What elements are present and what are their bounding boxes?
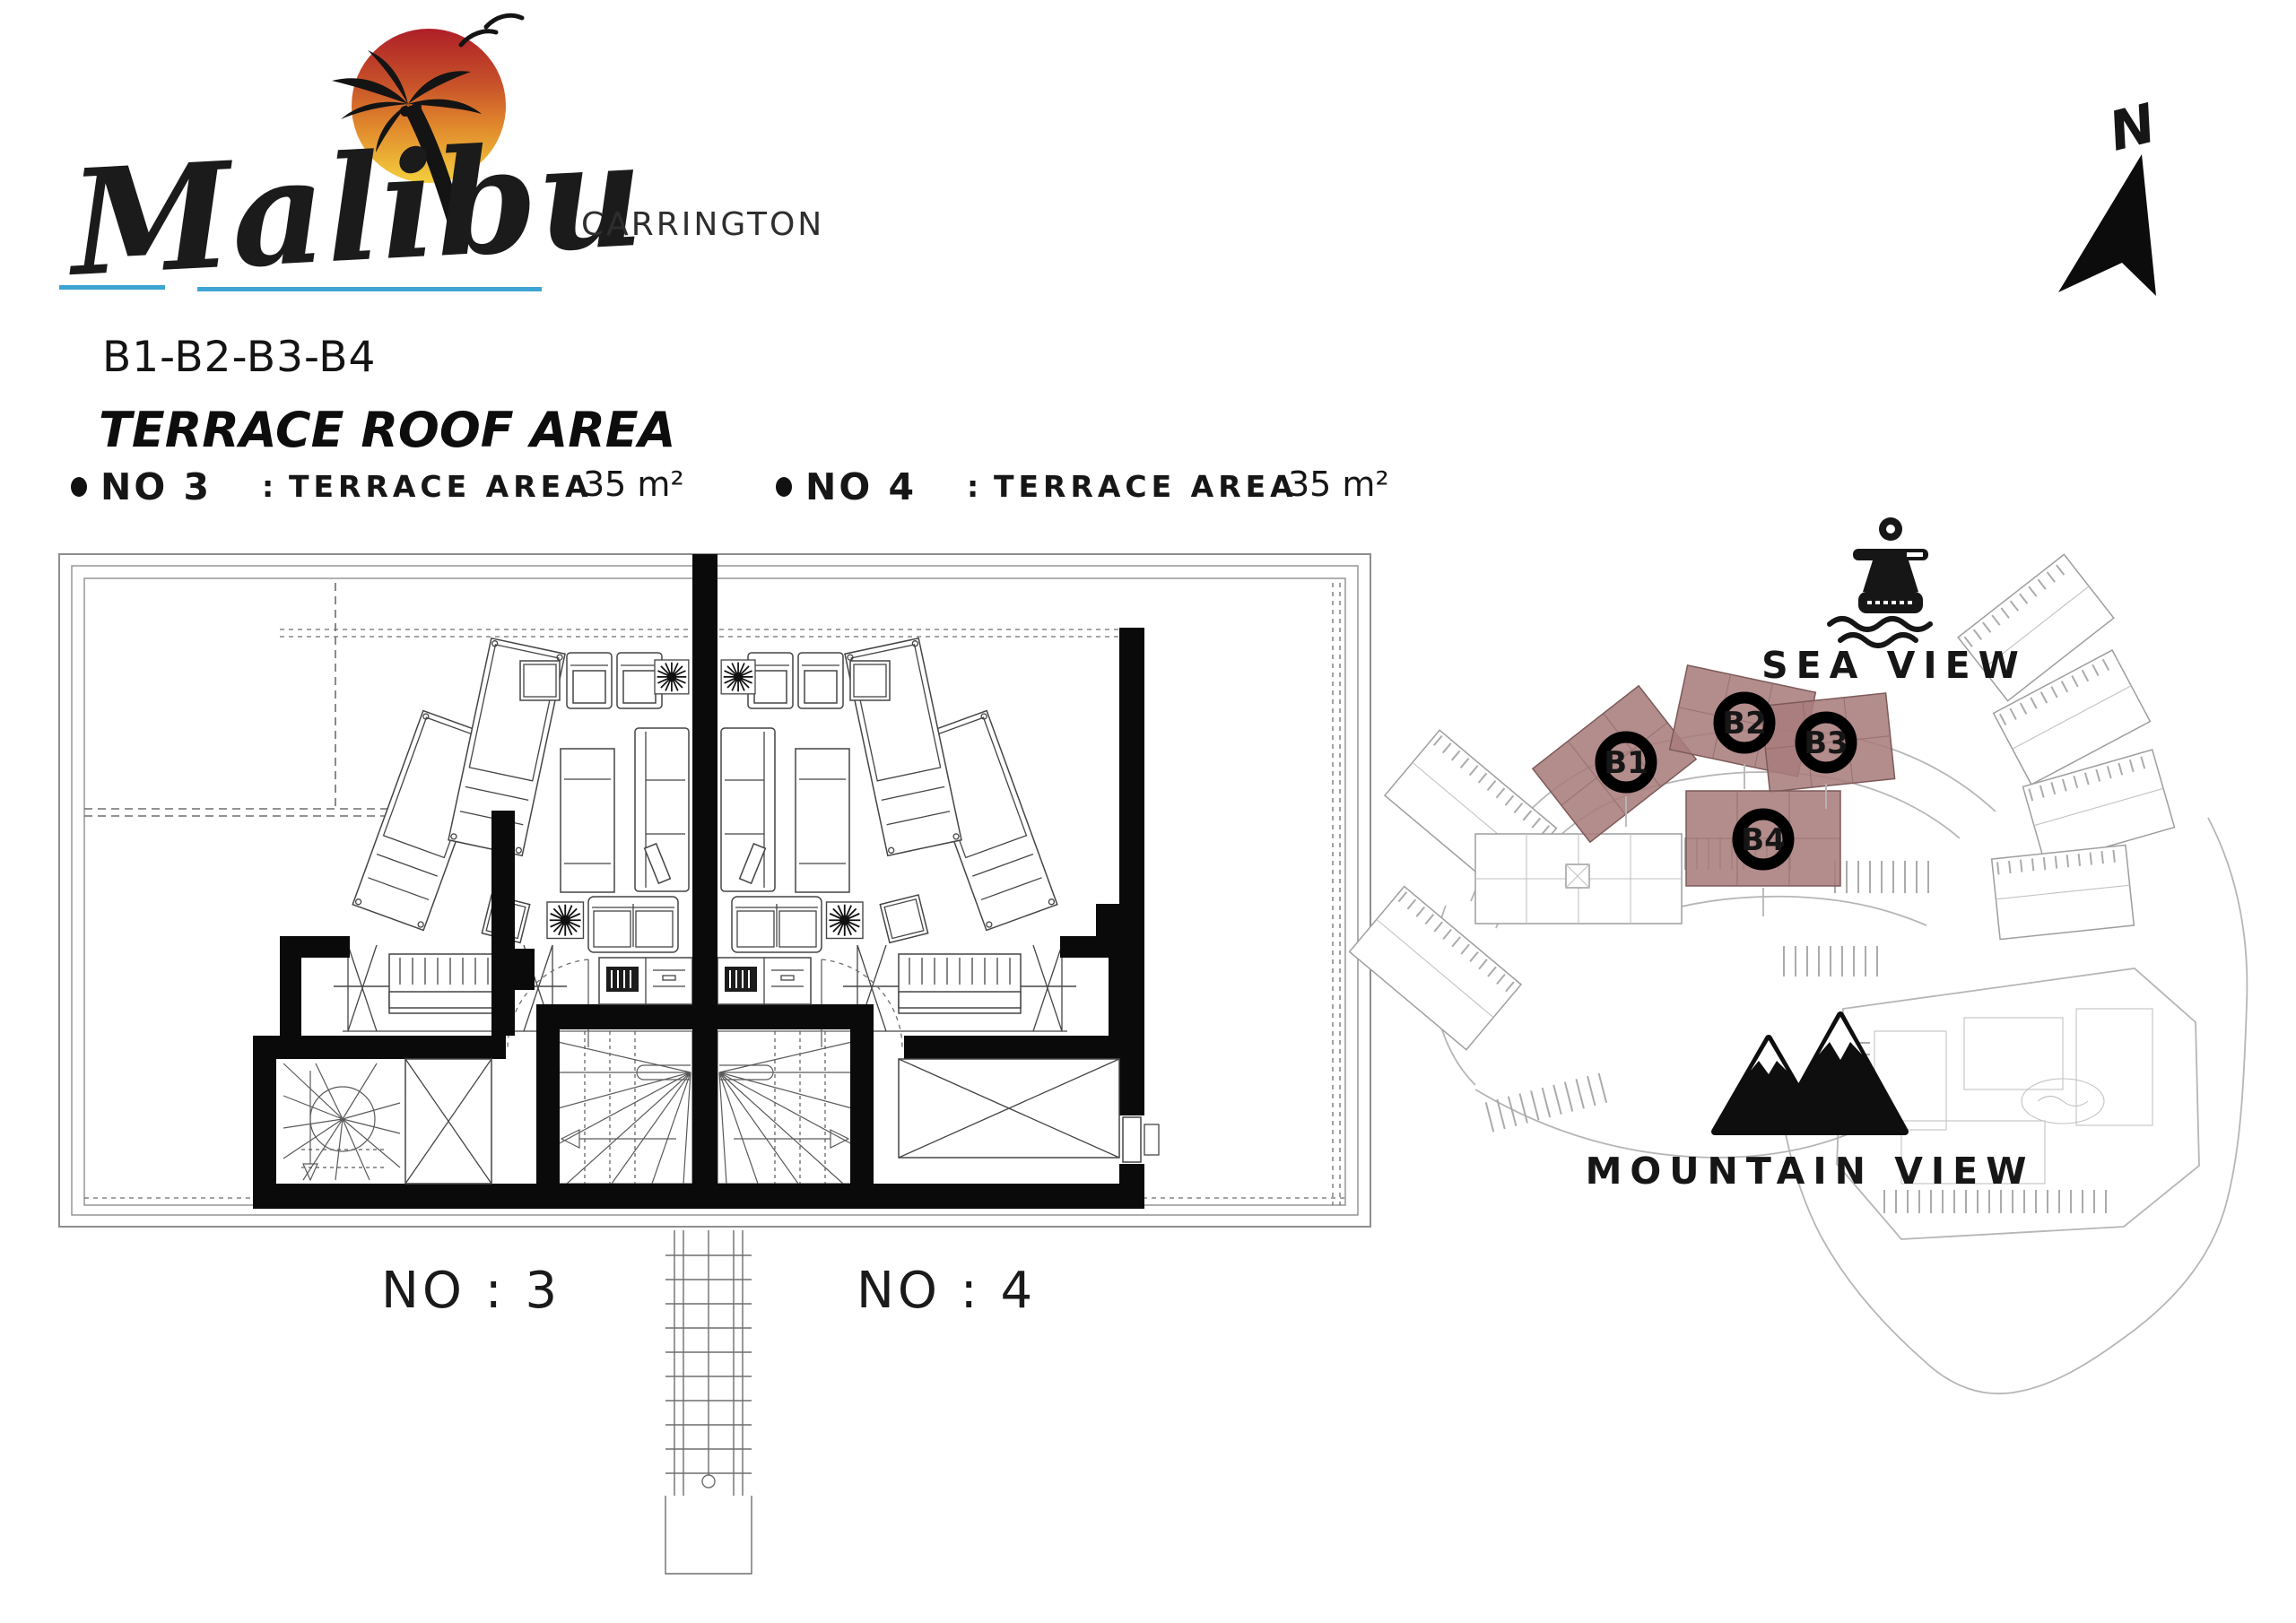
bullet-icon [71,477,87,497]
spec-colon: : [262,469,278,504]
window [1123,1117,1141,1162]
birds-icon [461,15,522,45]
shaft-no4 [899,1059,1119,1158]
north-label: N [2103,92,2162,164]
walkway-stair [665,1230,752,1574]
marker-label-b2: B2 [1722,706,1767,742]
spec-value: 35 m² [1288,464,1389,504]
north-arrow: N [2058,92,2162,296]
spec-colon: : [967,469,983,504]
unit-range-heading: B1-B2-B3-B4 [102,333,376,382]
unit-label-no3: NO : 3 [381,1262,561,1320]
logo-underline-right [197,287,542,291]
north-arrow-icon [2058,154,2156,296]
spec-no: NO 3 [100,465,212,508]
spec-no: NO 4 [805,465,917,508]
spec-row-no3: NO 3 : TERRACE AREA 35 m² [71,464,684,508]
logo-underline-left [59,285,165,290]
sheet-title: TERRACE ROOF AREA [99,402,675,458]
bullet-icon [776,477,792,497]
spec-label: TERRACE AREA [994,469,1298,504]
winder-stair [283,1063,400,1180]
spec-label: TERRACE AREA [289,469,593,504]
unit-label-no4: NO : 4 [857,1262,1036,1320]
shaft-no3 [405,1059,491,1184]
brand-subtitle: CARRINGTON [581,206,824,243]
sea-view-icon [1830,517,1930,646]
floor-plan: NO : 3 NO : 4 [59,554,1370,1574]
site-map: B1 B2 B3 B4 SEA VIEW MOUNTAIN V [1350,517,2248,1393]
spec-row-no4: NO 4 : TERRACE AREA 35 m² [776,464,1389,508]
marker-label-b1: B1 [1604,745,1648,781]
mountain-view-icon [1715,1015,1905,1132]
sheet-header: B1-B2-B3-B4 TERRACE ROOF AREA NO 3 : TER… [71,333,1389,508]
marker-label-b3: B3 [1804,725,1848,761]
mountain-view-label: MOUNTAIN VIEW [1586,1150,2035,1193]
marker-label-b4: B4 [1741,822,1786,858]
brand-name: Malibu [62,109,647,309]
party-wall [692,554,717,1209]
spec-value: 35 m² [583,464,684,504]
brochure-page: Malibu CARRINGTON B1-B2-B3-B4 TERRACE RO… [0,0,2296,1623]
brand-logo: Malibu CARRINGTON [59,15,824,309]
sea-view-label: SEA VIEW [1761,644,2027,687]
